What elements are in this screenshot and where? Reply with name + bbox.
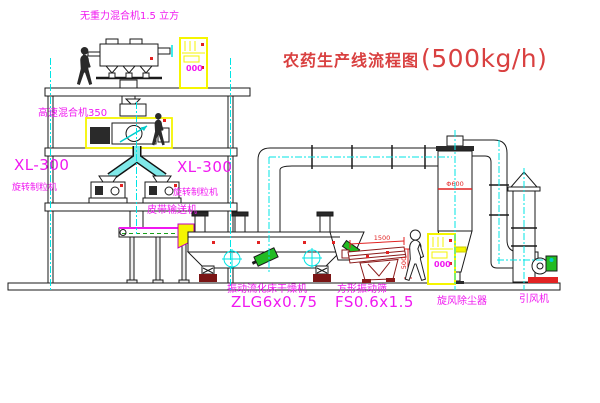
label-fan: 引风机 [519, 295, 549, 306]
control-cabinet-2: 000 [428, 234, 455, 284]
dryer-exhaust-duct [258, 145, 440, 232]
label-high-speed-mixer: 高速混合机350 [38, 109, 107, 120]
screen-height-dim: 500 [400, 257, 408, 269]
label-cyclone: 旋风除尘器 [437, 297, 487, 308]
screen-width-dim: 1500 [374, 234, 391, 242]
label-granulator-left-name: 旋转制粒机 [12, 184, 57, 193]
control-cabinet-1: 000 [180, 38, 207, 88]
label-dryer-model: ZLG6x0.75 [231, 295, 318, 311]
cabinet-1-display: 000 [186, 64, 203, 73]
label-screen-model: FS0.6x1.5 [335, 295, 414, 311]
cabinet-2-display: 000 [434, 260, 451, 269]
label-granulator-right-model: XL-300 [177, 160, 232, 176]
title-text: 农药生产线流程图 [283, 47, 419, 71]
label-gravity-mixer: 无重力混合机1.5 立方 [80, 12, 179, 23]
label-granulator-right-name: 旋转制粒机 [173, 189, 218, 198]
flow-diagram-page: 000 [0, 0, 600, 403]
label-granulator-left-model: XL-300 [14, 158, 69, 174]
title-capacity: (500kg/h) [421, 44, 547, 73]
gravity-free-mixer [84, 39, 173, 88]
granulator-left [89, 176, 127, 203]
label-belt-conveyor: 皮带输送机 [147, 206, 197, 217]
page-title: 农药生产线流程图 (500kg/h) [283, 44, 547, 73]
